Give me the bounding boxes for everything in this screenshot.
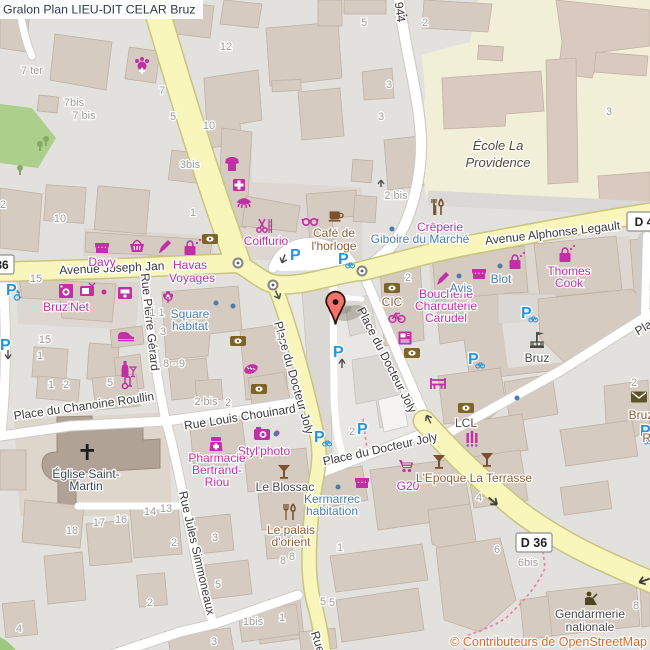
- svg-text:P: P: [338, 251, 349, 268]
- svg-text:École La: École La: [473, 138, 524, 153]
- svg-text:Providence: Providence: [465, 155, 530, 170]
- svg-text:2: 2: [405, 272, 411, 284]
- svg-text:Café de: Café de: [313, 226, 355, 240]
- svg-text:3: 3: [606, 106, 612, 118]
- svg-text:Ro: Ro: [642, 431, 650, 445]
- svg-text:5: 5: [361, 17, 367, 29]
- svg-text:Gralon Plan LIEU-DIT CELAR Bru: Gralon Plan LIEU-DIT CELAR Bruz: [3, 3, 196, 17]
- svg-text:Havas: Havas: [173, 258, 207, 272]
- svg-text:8 - 9: 8 - 9: [163, 358, 185, 370]
- svg-text:3: 3: [160, 326, 166, 338]
- svg-text:1 1: 1 1: [149, 307, 164, 319]
- svg-text:1bis: 1bis: [243, 616, 264, 628]
- svg-text:5: 5: [107, 377, 113, 389]
- svg-text:2 bis: 2 bis: [194, 396, 218, 408]
- svg-text:1: 1: [279, 612, 285, 624]
- svg-text:L'Epoque La Terrasse: L'Epoque La Terrasse: [416, 471, 532, 485]
- svg-text:2 bis: 2 bis: [384, 190, 408, 202]
- svg-text:P: P: [0, 337, 11, 354]
- svg-text:15: 15: [39, 334, 51, 346]
- svg-text:habitation: habitation: [306, 504, 358, 518]
- svg-text:Avis: Avis: [450, 281, 472, 295]
- svg-text:17: 17: [93, 517, 105, 529]
- svg-text:LCL: LCL: [455, 416, 477, 430]
- svg-text:P: P: [290, 247, 301, 264]
- svg-text:Carudel: Carudel: [425, 311, 467, 325]
- svg-text:Le Blossac: Le Blossac: [256, 480, 315, 494]
- svg-text:2: 2: [147, 597, 153, 609]
- svg-text:l'horloge: l'horloge: [312, 239, 357, 253]
- svg-text:3bis: 3bis: [180, 159, 201, 171]
- svg-text:P: P: [357, 421, 368, 438]
- svg-text:CIC: CIC: [382, 295, 403, 309]
- svg-text:2: 2: [422, 17, 428, 29]
- svg-text:Coiffurio: Coiffurio: [244, 234, 289, 248]
- svg-text:D 36: D 36: [521, 536, 547, 550]
- svg-text:3: 3: [211, 636, 217, 648]
- svg-text:4: 4: [476, 492, 482, 504]
- svg-text:16: 16: [115, 514, 127, 526]
- svg-text:7: 7: [159, 85, 165, 97]
- svg-text:2: 2: [349, 426, 355, 438]
- svg-text:5: 5: [329, 597, 335, 609]
- svg-text:2: 2: [171, 537, 177, 549]
- svg-text:1: 1: [276, 331, 282, 343]
- svg-text:12: 12: [220, 41, 232, 53]
- svg-text:5: 5: [215, 579, 221, 591]
- svg-text:d'orient: d'orient: [272, 535, 312, 549]
- svg-text:2: 2: [63, 379, 69, 391]
- svg-text:3: 3: [378, 111, 384, 123]
- svg-text:Martin: Martin: [69, 479, 102, 493]
- svg-text:1: 1: [190, 207, 196, 219]
- svg-text:7 bis: 7 bis: [72, 110, 96, 122]
- svg-text:2: 2: [0, 199, 6, 211]
- svg-text:18: 18: [66, 525, 78, 537]
- svg-text:1: 1: [37, 350, 43, 362]
- svg-text:13: 13: [160, 503, 172, 515]
- svg-text:6: 6: [494, 544, 500, 556]
- svg-text:1: 1: [337, 542, 343, 554]
- svg-text:36: 36: [0, 258, 9, 272]
- svg-text:Giboire du Marché: Giboire du Marché: [371, 232, 470, 246]
- svg-text:6bis: 6bis: [518, 557, 539, 569]
- svg-text:2: 2: [225, 397, 231, 409]
- svg-text:5: 5: [170, 111, 176, 123]
- svg-text:Gendarmerie: Gendarmerie: [555, 607, 625, 621]
- svg-text:3: 3: [386, 79, 392, 91]
- svg-text:7 ter: 7 ter: [21, 65, 43, 77]
- svg-text:P: P: [6, 282, 17, 299]
- svg-text:Blot: Blot: [491, 272, 512, 286]
- svg-text:P: P: [468, 351, 479, 368]
- svg-text:8: 8: [289, 551, 295, 563]
- svg-text:2: 2: [631, 377, 637, 389]
- svg-text:4: 4: [16, 623, 22, 635]
- svg-text:Riou: Riou: [205, 475, 230, 489]
- svg-text:Bruz'Net: Bruz'Net: [43, 300, 89, 314]
- svg-text:nationale: nationale: [566, 620, 615, 634]
- svg-text:D 4: D 4: [635, 215, 650, 229]
- svg-text:P: P: [521, 305, 532, 322]
- svg-text:Bruz: Bruz: [525, 351, 550, 365]
- svg-text:14: 14: [144, 506, 156, 518]
- svg-text:5: 5: [320, 596, 326, 608]
- svg-text:P: P: [333, 344, 344, 361]
- svg-text:10: 10: [203, 120, 215, 132]
- svg-text:Styl'photo: Styl'photo: [238, 444, 291, 458]
- svg-text:Bruz: Bruz: [629, 408, 650, 422]
- svg-text:1: 1: [48, 379, 54, 391]
- svg-text:© Contributeurs de OpenStreetM: © Contributeurs de OpenStreetMap: [450, 635, 647, 649]
- svg-text:Voyages: Voyages: [169, 271, 215, 285]
- svg-text:3: 3: [212, 532, 218, 544]
- svg-text:8: 8: [633, 600, 639, 612]
- svg-text:Davy: Davy: [88, 255, 115, 269]
- svg-text:15: 15: [30, 273, 42, 285]
- svg-text:8: 8: [280, 555, 286, 567]
- svg-text:10: 10: [54, 213, 66, 225]
- svg-text:7bis: 7bis: [64, 97, 85, 109]
- svg-text:Cook: Cook: [555, 276, 584, 290]
- svg-text:habitat: habitat: [172, 319, 209, 333]
- svg-text:944: 944: [392, 1, 409, 23]
